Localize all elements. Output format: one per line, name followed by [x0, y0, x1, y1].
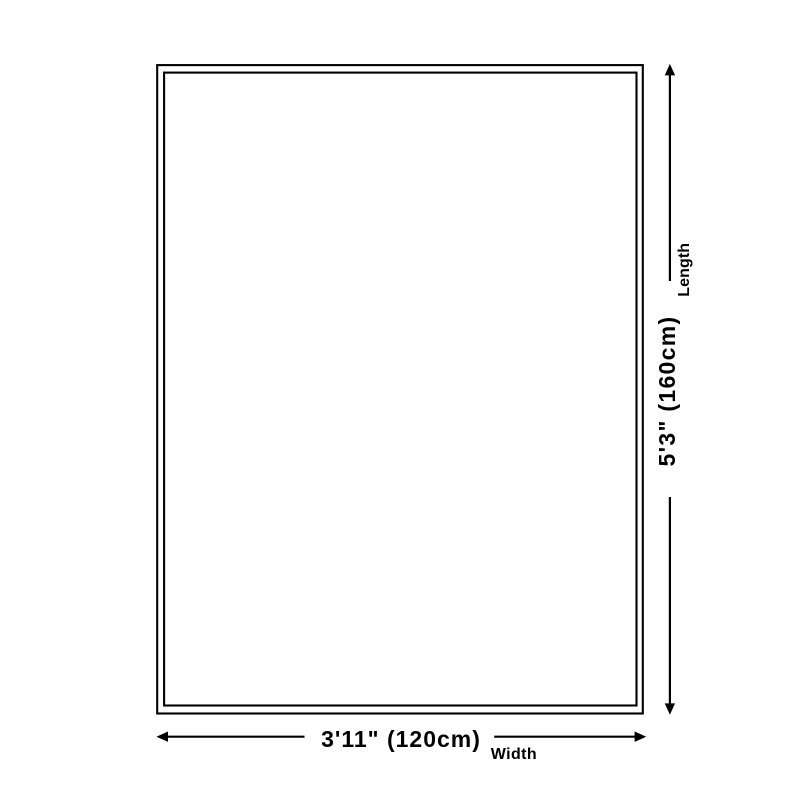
svg-text:Width: Width: [491, 746, 537, 763]
svg-text:5'3" (160cm): 5'3" (160cm): [654, 316, 680, 467]
svg-text:3'11" (120cm): 3'11" (120cm): [321, 726, 481, 752]
svg-text:Length: Length: [676, 243, 693, 297]
